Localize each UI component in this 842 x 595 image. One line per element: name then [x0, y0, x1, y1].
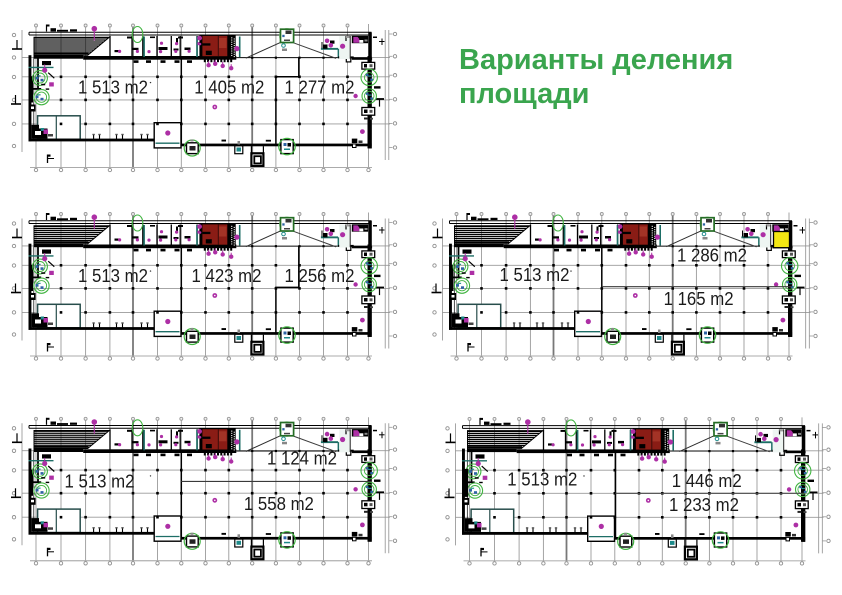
svg-text:1 446 m2: 1 446 m2: [672, 470, 742, 491]
svg-text:1 423 m2: 1 423 m2: [192, 265, 262, 286]
svg-text:1 233 m2: 1 233 m2: [669, 494, 739, 515]
svg-text:1 513 m2: 1 513 m2: [78, 265, 148, 286]
svg-text:1 513 m2: 1 513 m2: [65, 471, 135, 492]
svg-text:Варианты деления: Варианты деления: [459, 44, 733, 76]
svg-text:1 165 m2: 1 165 m2: [664, 288, 734, 309]
svg-text:1 513 m2: 1 513 m2: [507, 469, 577, 490]
svg-text:площади: площади: [459, 78, 589, 110]
svg-text:1 405 m2: 1 405 m2: [194, 77, 264, 98]
svg-text:1 256 m2: 1 256 m2: [285, 265, 355, 286]
svg-text:1 513 m2: 1 513 m2: [78, 77, 148, 98]
svg-text:1 286 m2: 1 286 m2: [677, 244, 747, 265]
svg-text:1 513 m2: 1 513 m2: [500, 264, 570, 285]
svg-text:1 124 m2: 1 124 m2: [267, 448, 337, 469]
svg-text:1 277 m2: 1 277 m2: [285, 77, 355, 98]
svg-text:1 558 m2: 1 558 m2: [244, 493, 314, 514]
